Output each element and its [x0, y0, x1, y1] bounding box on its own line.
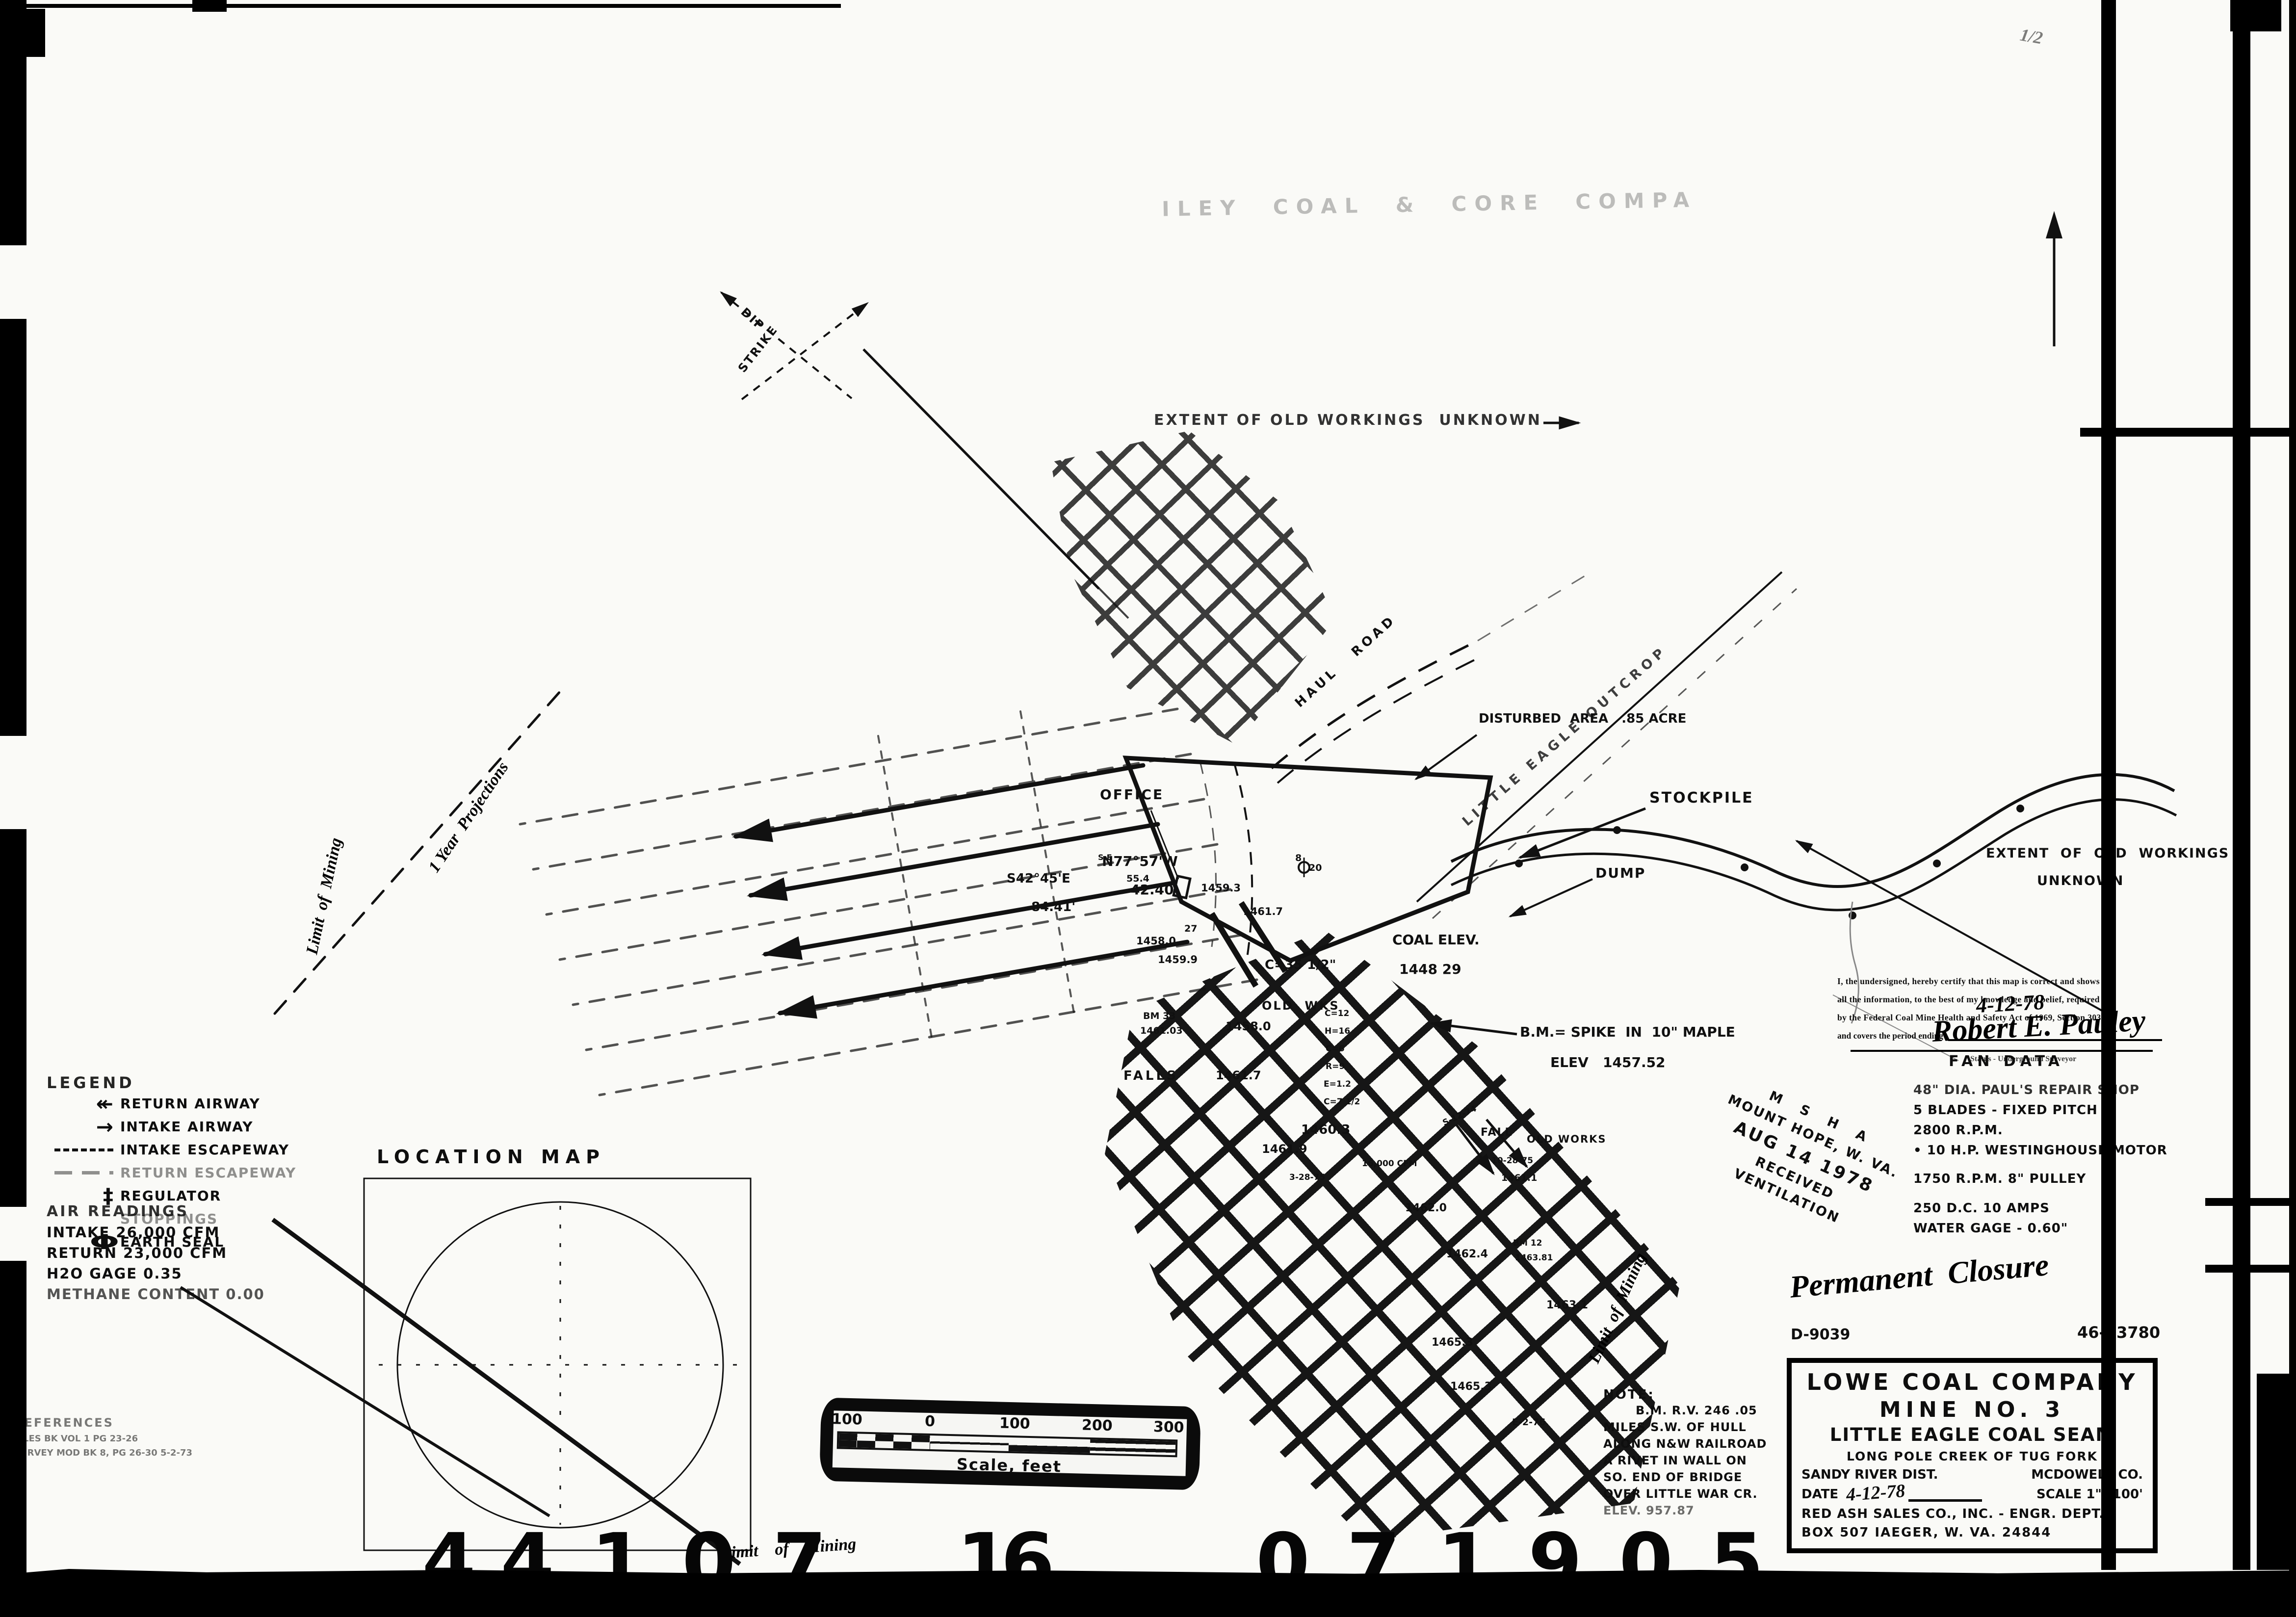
mine-map-scan: ILEY COAL & CORE COMPA: [0, 0, 2296, 1617]
scan-artifact: [2101, 0, 2116, 1570]
scan-artifact: [192, 0, 227, 12]
scan-artifact: [2257, 1374, 2296, 1570]
scan-artifact: [2080, 428, 2296, 437]
scan-artifact: [2233, 0, 2250, 1570]
scan-artifact: [26, 4, 841, 8]
scan-artifact: [13, 9, 45, 57]
scan-artifact: [2230, 0, 2281, 31]
scan-artifact: [2205, 1265, 2296, 1273]
scan-artifact: [2205, 1198, 2296, 1206]
scan-bottom-band: [0, 1569, 2296, 1617]
bottom-archive-digits: 4410716071905: [0, 0, 2296, 1617]
